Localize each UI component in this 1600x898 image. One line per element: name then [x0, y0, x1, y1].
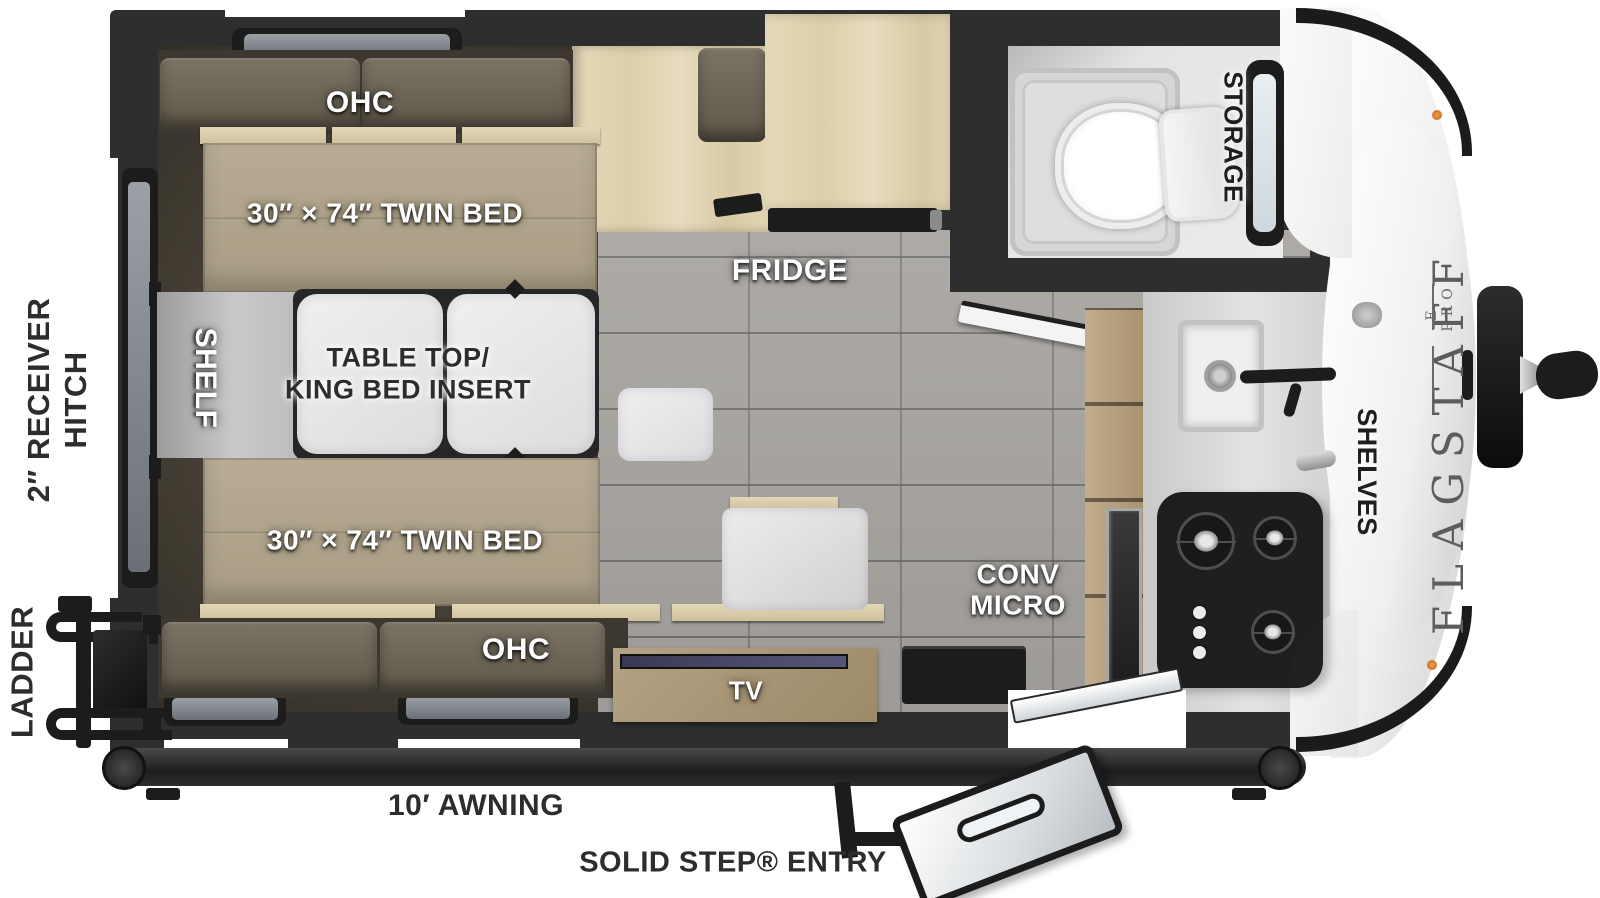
cabinet-knob: [1352, 302, 1382, 328]
label-conv-micro: CONV MICRO: [970, 559, 1066, 622]
label-entry: SOLID STEP® ENTRY: [579, 846, 887, 881]
label-awning: 10′ AWNING: [388, 788, 564, 824]
rear-window-latch: [149, 455, 161, 479]
label-twin-bed-bottom: 30″ × 74″ TWIN BED: [267, 524, 543, 555]
awning-mount-foot: [1232, 788, 1266, 800]
cooktop-knob: [1193, 626, 1206, 639]
label-ohc-top: OHC: [326, 86, 394, 120]
cooktop-burner: [1251, 610, 1295, 654]
awning-roll: [116, 748, 1306, 786]
door-side-window-strip: [164, 739, 288, 748]
ladder-mount-tab: [143, 712, 161, 732]
label-shelves: SHELVES: [1351, 408, 1383, 536]
label-ladder: LADDER: [3, 606, 40, 738]
label-receiver-hitch: 2″ RECEIVER HITCH: [20, 298, 94, 503]
wardrobe-cabinet: [765, 14, 961, 210]
cooktop-knob: [1193, 646, 1206, 659]
ladder-mount-tab: [143, 615, 161, 635]
top-ohc-rail: [462, 127, 600, 144]
ottoman-cube: [722, 508, 868, 610]
clearance-light: [1432, 110, 1442, 120]
bathroom-wall-bottom: [950, 258, 1318, 292]
roof-window-exterior-strip: [225, 4, 465, 17]
cooktop-burner-large: [1177, 512, 1235, 570]
label-tv: TV: [729, 676, 763, 705]
label-conv-line1: CONV: [970, 559, 1066, 590]
bathroom-wall-left: [950, 10, 1008, 292]
brand-sub: E-PRO: [1424, 276, 1456, 338]
label-table-top: TABLE TOP/ KING BED INSERT: [285, 342, 531, 407]
label-storage: STORAGE: [1217, 71, 1248, 203]
ladder-panel: [93, 630, 147, 712]
door-side-window2-glass: [406, 696, 570, 719]
sink-drain: [1204, 360, 1236, 392]
label-fridge: FRIDGE: [732, 254, 848, 288]
awning-mount-foot: [146, 788, 180, 800]
awning-end-cap: [102, 746, 146, 790]
rear-window-glass: [128, 182, 150, 572]
top-ohc-rail: [200, 127, 326, 144]
door-side-window-glass: [172, 698, 278, 720]
label-table-line1: TABLE TOP/: [285, 342, 531, 374]
label-ohc-bottom: OHC: [482, 633, 550, 667]
clearance-light: [1427, 660, 1437, 670]
top-ohc-rail: [332, 127, 456, 144]
label-conv-line2: MICRO: [970, 590, 1066, 621]
cooktop-knob: [1193, 606, 1206, 619]
fridge-handle: [930, 210, 942, 230]
awning-end-cap: [1258, 746, 1302, 790]
label-twin-bed-top: 30″ × 74″ TWIN BED: [247, 197, 523, 228]
storage-compartment-glass: [1253, 74, 1276, 232]
corner-bench-cushion: [698, 48, 766, 142]
cooktop: [1157, 492, 1323, 688]
hitch-coupler: [1533, 348, 1600, 402]
front-cap-trim-top: [1296, 8, 1472, 156]
label-receiver-line2: HITCH: [57, 298, 94, 503]
tongue-jack: [1477, 286, 1523, 468]
label-table-line2: KING BED INSERT: [285, 374, 531, 406]
side-table: [618, 388, 713, 461]
label-shelf: SHELF: [188, 328, 222, 429]
walkway-shelf-strip: [157, 292, 297, 458]
brand-rule: [1432, 346, 1434, 392]
cooktop-burner: [1253, 516, 1297, 560]
door-side-window2-strip: [398, 739, 580, 748]
bottom-sofa-cushion: [162, 622, 377, 694]
tv-screen: [620, 654, 848, 669]
label-receiver-line1: 2″ RECEIVER: [20, 298, 57, 503]
rear-window-exterior-strip: [108, 158, 118, 598]
floorplan-canvas: OHC 30″ × 74″ TWIN BED TABLE TOP/ KING B…: [0, 0, 1600, 898]
fridge-counter-edge: [768, 208, 938, 232]
convection-microwave: [1106, 508, 1142, 684]
